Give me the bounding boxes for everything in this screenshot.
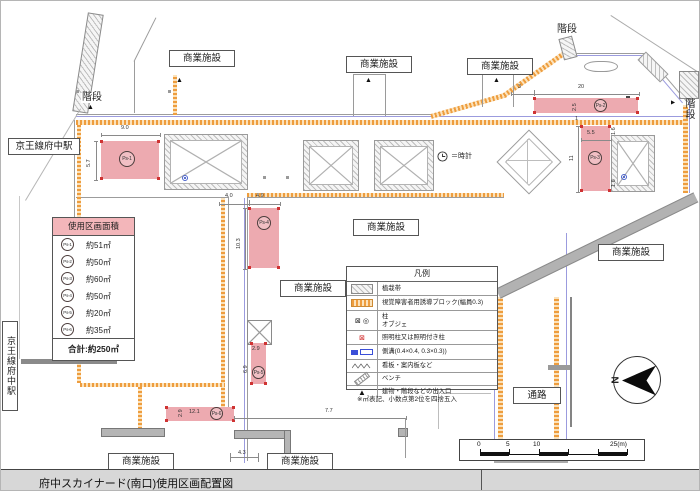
structure-box (611, 135, 655, 192)
gutter-outline-icon (360, 349, 373, 355)
parcel-id-badge: Ps-6 (61, 323, 74, 336)
structure-box (303, 140, 359, 191)
entrance-triangle-icon: ▲ (365, 77, 372, 84)
plan-line (228, 198, 229, 410)
drawing-title: 府中スカイナード(南口)使用区画配置図 (39, 475, 233, 491)
parcel-id-badge: Ps-5 (252, 366, 265, 379)
entrance-triangle-icon: ▲ (176, 77, 183, 84)
dim-text: 12.1 (189, 410, 200, 416)
parcel-id-badge: Ps-1 (61, 238, 74, 251)
table-row: Ps-5約20㎡ (53, 304, 134, 321)
title-bar: 府中スカイナード(南口)使用区画配置図 (1, 469, 700, 491)
wall-bar (548, 365, 570, 370)
legend-row: ⊠ ◎柱オブジェ (347, 311, 497, 331)
dim-text: 5.5 (587, 131, 595, 137)
area-table-total: 合計:約250㎡ (53, 338, 134, 360)
entrance-triangle-icon: ▲ (87, 104, 94, 111)
legend-row: ⊠照明柱又は照明付き柱 (347, 331, 497, 345)
lighting-circle-icon (182, 175, 188, 181)
area-table: 使用区画面積 Ps-1約51㎡ Ps-2約50㎡ Ps-3約60㎡ Ps-4約5… (52, 217, 135, 361)
station-label-left: 京王線府中駅 (2, 321, 18, 411)
column-icon (76, 90, 79, 93)
parcel-id-badge: Ps-5 (61, 306, 74, 319)
legend-label: 建物・階段などの出入口 (378, 388, 451, 396)
legend-row: ベンチ (347, 373, 497, 386)
plan-line (571, 53, 646, 54)
bench-shape (584, 61, 618, 72)
scale-segment (598, 452, 627, 456)
wall-line (570, 297, 572, 427)
plan-line (134, 61, 135, 113)
structure-box (374, 140, 434, 191)
scale-bar: 0 5 10 25(m) (459, 439, 645, 461)
dim-text: 2.5 (573, 103, 579, 111)
plan-line (527, 139, 528, 183)
gutter-swatch-icon (351, 350, 358, 355)
bench-icon (354, 372, 370, 387)
dim-tick (249, 200, 250, 206)
clock-icon (437, 151, 448, 162)
scale-segment (480, 452, 509, 456)
tactile-swatch-icon (351, 299, 373, 307)
legend-note: ※㎡表記、小数点第2位を四捨五入 (357, 397, 457, 404)
dim-line (219, 202, 281, 206)
column-icon (263, 176, 266, 179)
parcel-ps3: Ps-3 (581, 126, 610, 191)
scale-tick-label: 10 (533, 442, 540, 449)
tactile-strip-top (76, 120, 684, 125)
dim-text: 5.7 (87, 159, 93, 167)
commercial-label-6: 商業施設 (598, 244, 664, 261)
dim-text: 7.7 (325, 409, 333, 415)
legend-row: 視覚障害者用誘導ブロック(幅員0.3) (347, 296, 497, 311)
area-value: 約51㎡ (86, 240, 111, 251)
tactile-strip-center (221, 198, 225, 410)
pillar-object-icons: ⊠ ◎ (347, 311, 378, 330)
tactile-strip-lower (247, 193, 504, 197)
table-row: Ps-6約35㎡ (53, 321, 134, 338)
passage-label: 通路 (513, 387, 561, 404)
light-pillar-icon: ⊠ (347, 331, 378, 344)
table-row: Ps-4約50㎡ (53, 287, 134, 304)
legend: 凡例 植栽帯 視覚障害者用誘導ブロック(幅員0.3) ⊠ ◎柱オブジェ ⊠照明柱… (346, 266, 498, 390)
parcel-id-badge: Ps-4 (61, 289, 74, 302)
station-label-top: 京王線府中駅 (8, 138, 80, 155)
commercial-label-5: 商業施設 (280, 280, 346, 297)
dim-text: 10.3 (237, 238, 243, 249)
entrance-triangle-icon: ▲ (669, 99, 676, 106)
legend-row: 植栽帯 (347, 282, 497, 296)
dim-text: 9.0 (121, 126, 129, 132)
gutter-line (571, 55, 646, 56)
dim-tick (258, 453, 259, 462)
area-value: 約60㎡ (86, 274, 111, 285)
table-row: Ps-2約50㎡ (53, 253, 134, 270)
plan-line (19, 196, 20, 359)
legend-label: 視覚障害者用誘導ブロック(幅員0.3) (378, 299, 483, 307)
road-band (496, 192, 699, 298)
tactile-strip-bottomleft-v (138, 387, 142, 433)
commercial-label-1: 商業施設 (169, 50, 235, 67)
entrance-triangle-icon: ▲ (493, 77, 500, 84)
legend-row: 看板・案内板など (347, 360, 497, 373)
parcel-ps1: Ps-1 (101, 141, 159, 179)
parcel-id-badge: Ps-3 (61, 272, 74, 285)
area-value: 約20㎡ (86, 308, 111, 319)
parcel-ps2: Ps-2 (534, 98, 638, 113)
dim-text: 4.9 (256, 194, 264, 200)
stairs-label-right: 階段 (683, 98, 693, 120)
scale-tick-label: 5 (506, 442, 510, 449)
plan-line (405, 418, 406, 458)
parcel-id-badge: Ps-1 (119, 151, 135, 167)
north-arrow-icon (622, 365, 656, 396)
wall-bar (234, 430, 287, 439)
parcel-id-badge: Ps-6 (210, 407, 223, 420)
legend-title: 凡例 (347, 267, 497, 282)
tactile-strip-passage-r (554, 297, 559, 461)
dim-text: 6.9 (244, 365, 250, 373)
title-bar-divider (481, 470, 482, 491)
structure-box (164, 134, 248, 190)
commercial-label-8: 商業施設 (267, 453, 333, 470)
scale-segment (539, 452, 568, 456)
table-row: Ps-3約60㎡ (53, 270, 134, 287)
escalator-hatch (637, 51, 668, 82)
legend-label: 植栽帯 (378, 285, 401, 293)
lighting-circle-icon (621, 174, 627, 180)
tactile-strip-bottomleft (80, 383, 225, 387)
legend-label-2: オブジェ (382, 321, 407, 328)
scale-tick-label: 25(m) (610, 442, 627, 449)
parcel-id-badge: Ps-2 (594, 99, 607, 112)
area-table-title: 使用区画面積 (53, 218, 134, 236)
scale-tick-label: 0 (477, 442, 481, 449)
dim-line (234, 416, 407, 420)
plan-line (247, 197, 504, 198)
legend-row: 側溝(0.4×0.4, 0.3×0.3)) (347, 345, 497, 360)
dim-text: 4.3 (238, 451, 246, 457)
commercial-label-3: 商業施設 (467, 58, 533, 75)
legend-label: 看板・案内板など (378, 362, 432, 370)
parcel-ps4: Ps-4 (249, 208, 279, 268)
north-label: N (612, 376, 622, 383)
commercial-label-2: 商業施設 (346, 56, 412, 73)
dim-line (243, 208, 247, 270)
dim-text: 20 (578, 85, 584, 91)
column-icon (286, 176, 289, 179)
parcel-id-badge: Ps-2 (61, 255, 74, 268)
commercial-label-4: 商業施設 (353, 219, 419, 236)
area-value: 約35㎡ (86, 325, 111, 336)
column-icon (168, 90, 171, 93)
area-value: 約50㎡ (86, 257, 111, 268)
dim-text: 1.6 (612, 179, 618, 187)
legend-label: ベンチ (378, 375, 401, 383)
dim-text: 11 (570, 155, 576, 161)
stairs-label-topcenter: 階段 (557, 25, 577, 35)
plan-line (76, 197, 229, 198)
gutter-line (76, 116, 689, 117)
dim-tick (534, 90, 535, 96)
parcel-id-badge: Ps-3 (588, 151, 602, 165)
dim-text: 1.6 (612, 127, 618, 135)
wall-bar (398, 428, 408, 437)
dim-line (101, 133, 161, 137)
dim-line (230, 457, 258, 458)
signboard-wave-icon (347, 360, 378, 372)
dim-text: 1 (575, 117, 578, 123)
planting-swatch-icon (351, 284, 373, 294)
legend-label: 照明柱又は照明付き柱 (378, 334, 445, 342)
parcel-id-badge: Ps-4 (257, 216, 271, 230)
stair-hatch-right (679, 71, 699, 99)
legend-label: 側溝(0.4×0.4, 0.3×0.3)) (378, 348, 447, 356)
dim-line (511, 92, 640, 96)
dim-line (576, 126, 580, 193)
area-value: 約50㎡ (86, 291, 111, 302)
gutter-line (566, 233, 567, 462)
dim-text: 2.9 (179, 409, 185, 417)
commercial-label-7: 商業施設 (108, 453, 174, 470)
wall-bar (101, 428, 165, 437)
dim-line (94, 141, 98, 181)
plan-line (134, 17, 157, 61)
tactile-strip-passage-l (498, 297, 503, 461)
clock-note: ＝時計 (451, 153, 472, 160)
dim-text: 4.0 (225, 194, 233, 200)
dim-text: 2.9 (252, 347, 260, 353)
table-row: Ps-1約51㎡ (53, 236, 134, 253)
parcel-ps6: Ps-6 (166, 407, 234, 421)
dim-line (581, 138, 612, 142)
dim-text: 3 (518, 85, 521, 91)
site-plan: 階段 ▲ ▲ ▲ ▲ ▲ ⊠ ＝時計 Ps-1 9.0 5.7 Ps-2 (0, 0, 700, 491)
plan-line (506, 160, 550, 161)
stairs-label-topleft: 階段 (81, 93, 103, 103)
legend-label: 柱 (382, 313, 388, 320)
